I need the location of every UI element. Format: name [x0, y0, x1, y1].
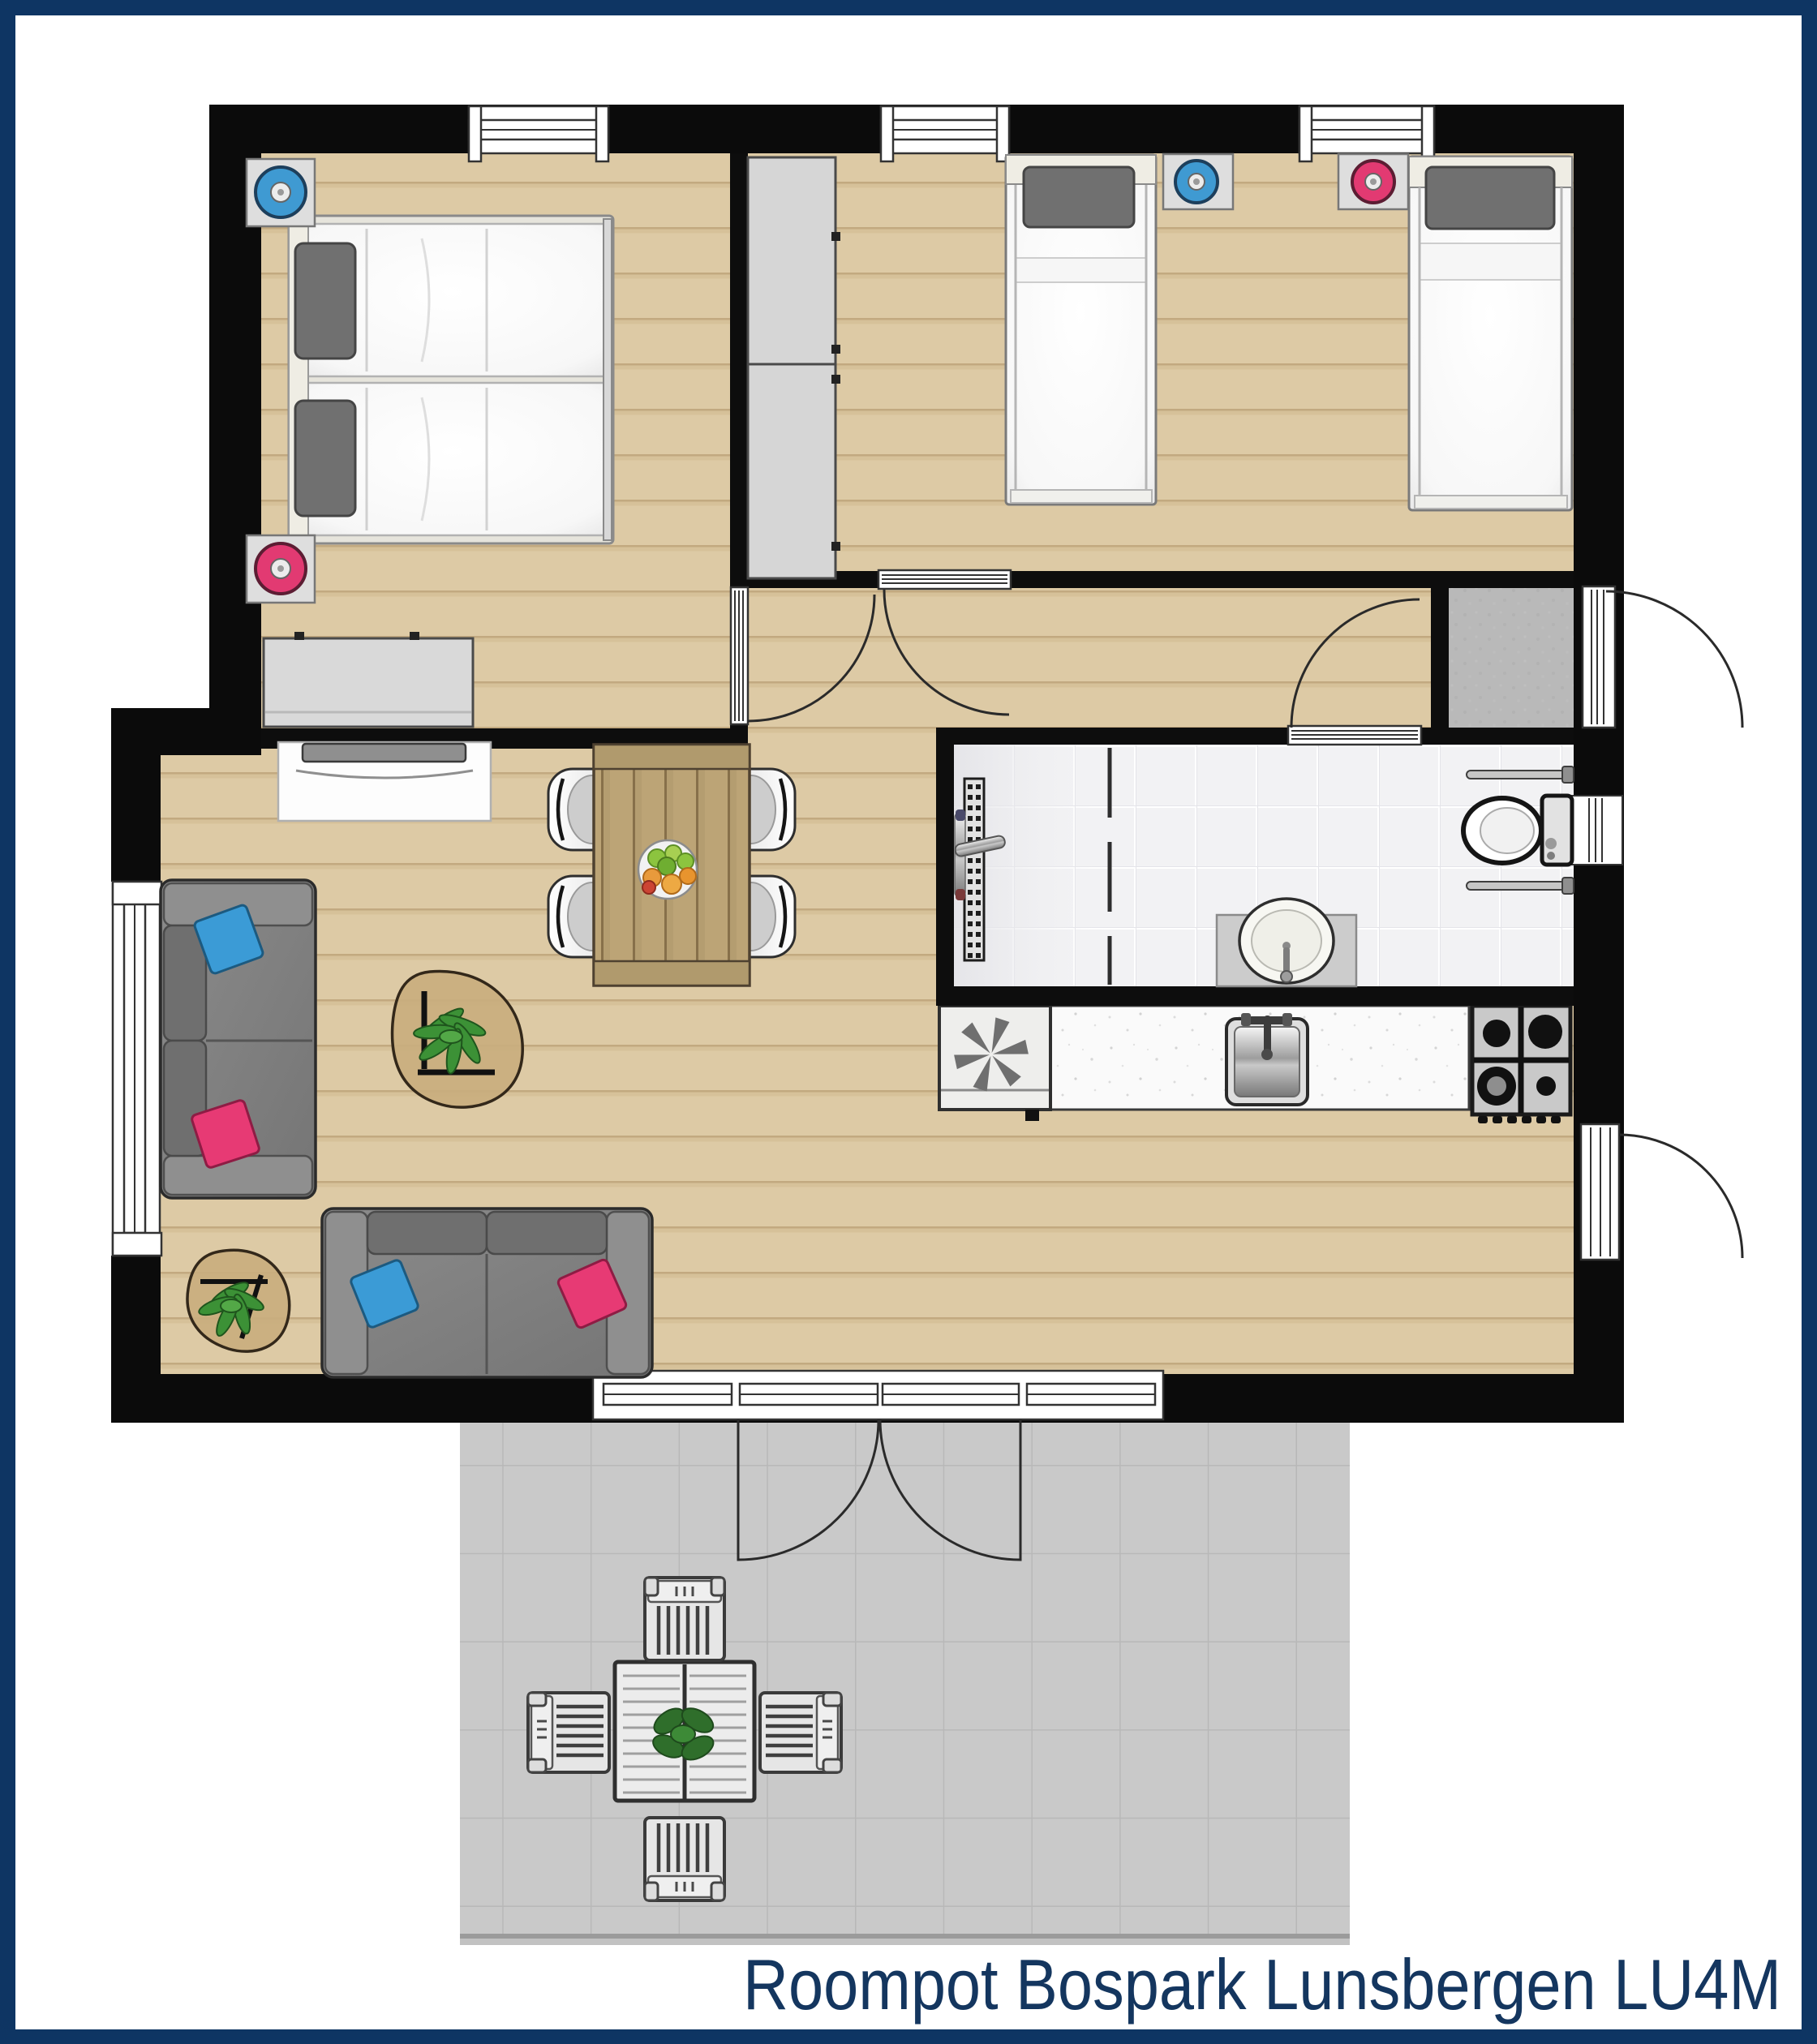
svg-text:Roompot Bospark Lunsbergen LU4: Roompot Bospark Lunsbergen LU4M — [743, 1944, 1781, 2025]
